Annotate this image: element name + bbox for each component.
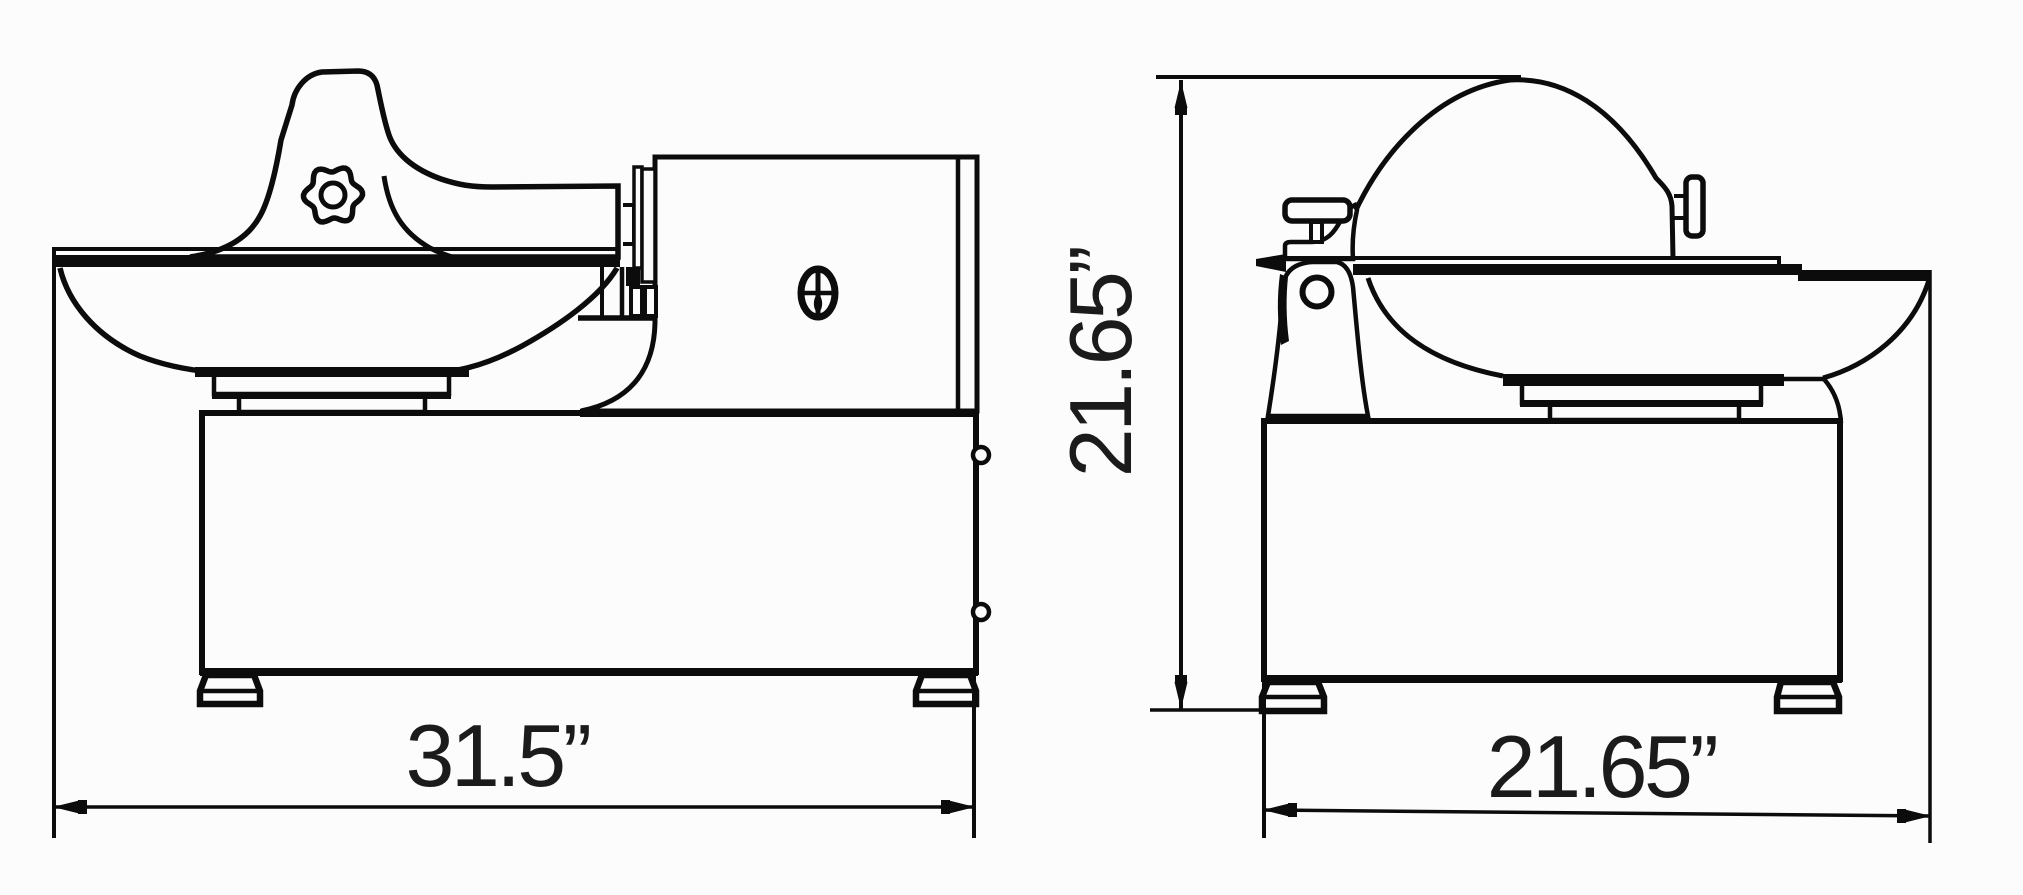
svg-text:31.5”: 31.5” — [405, 706, 589, 805]
svg-text:21.65”: 21.65” — [1487, 717, 1717, 816]
svg-text:21.65”: 21.65” — [1051, 248, 1150, 478]
